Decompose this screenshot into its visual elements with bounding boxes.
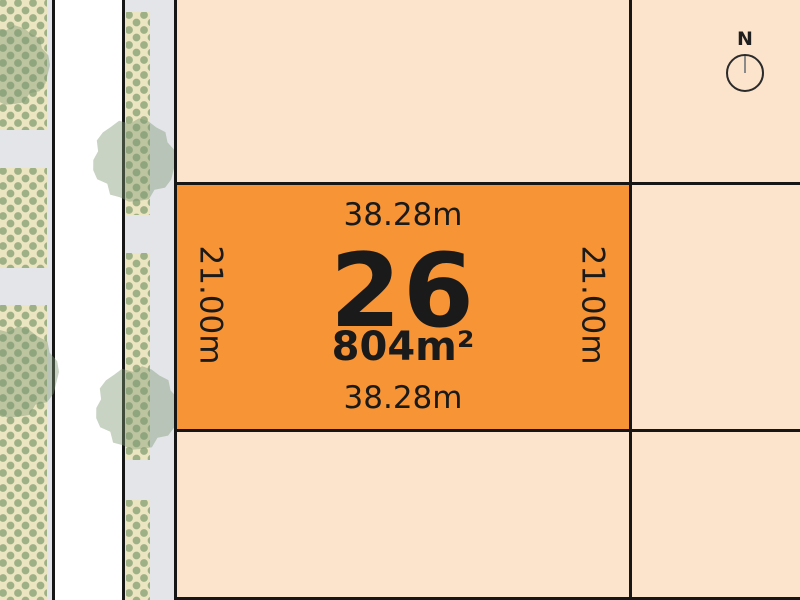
- site-plan: 38.28m 26 804m² 38.28m 21.00m 21.00m N: [0, 0, 800, 600]
- planting-bed: [126, 500, 150, 600]
- lot-parcel-26[interactable]: 38.28m 26 804m² 38.28m 21.00m 21.00m: [174, 182, 632, 432]
- lot-dimension-east: 21.00m: [577, 246, 608, 365]
- tree-icon: [92, 363, 182, 453]
- tree-icon: [0, 22, 53, 108]
- lot-dimension-west: 21.00m: [195, 246, 226, 365]
- planting-bed: [0, 168, 47, 268]
- lot-dimension-north: 38.28m: [344, 200, 463, 231]
- road-edge-line-east: [122, 0, 125, 600]
- compass-needle-icon: [744, 56, 746, 73]
- compass-circle-icon: [726, 54, 764, 92]
- tree-icon: [0, 323, 62, 421]
- lot-area: 804m²: [332, 327, 475, 367]
- road: [55, 0, 122, 600]
- north-compass: N: [725, 30, 765, 92]
- lot-dimension-south: 38.28m: [344, 383, 463, 414]
- north-label: N: [725, 30, 765, 49]
- tree-icon: [89, 115, 179, 205]
